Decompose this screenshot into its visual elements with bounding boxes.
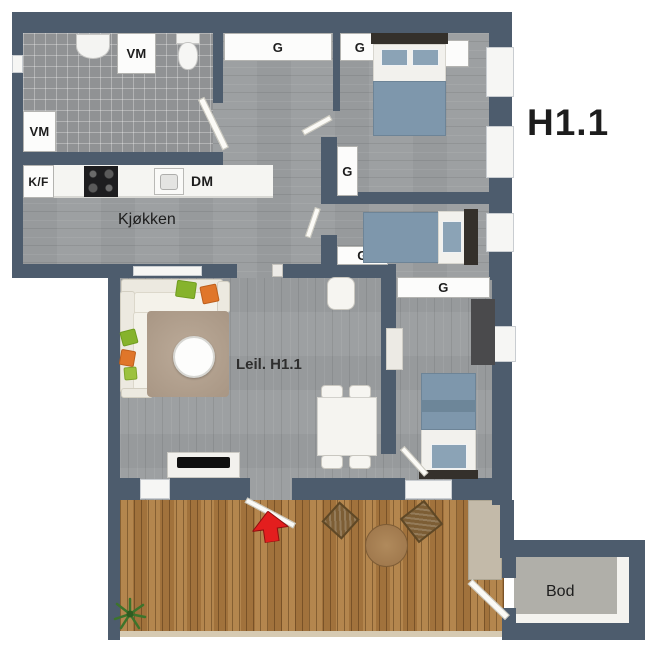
sink-basin bbox=[160, 174, 178, 190]
wall-right-lower bbox=[492, 280, 512, 505]
fridge-freezer: K/F bbox=[23, 165, 54, 198]
wall-top bbox=[12, 12, 511, 33]
door-bed3-south bbox=[405, 480, 452, 499]
wall-bed1-left bbox=[333, 33, 340, 111]
floor-plan: VM VM K/F DM Kjøkken G G G G G bbox=[0, 0, 650, 653]
washing-machine-2-label: VM bbox=[29, 124, 49, 139]
wall-south-2 bbox=[170, 478, 250, 500]
wall-mid-horizontal-east bbox=[283, 264, 387, 278]
wardrobe-bed3: G bbox=[397, 277, 490, 298]
bed3-duvet-fold bbox=[421, 400, 476, 412]
window-bed1-b bbox=[486, 126, 514, 178]
sink bbox=[76, 34, 110, 59]
sofa-pillow-orange bbox=[199, 283, 219, 304]
wall-left-upper bbox=[12, 12, 23, 278]
wardrobe-hall: G bbox=[224, 33, 332, 61]
bed3-pillow bbox=[431, 444, 467, 469]
bod-wall-left-upper bbox=[502, 540, 516, 578]
door-jamb-stub bbox=[272, 264, 283, 277]
entrance-arrow-icon bbox=[250, 509, 290, 545]
bathroom-vent bbox=[12, 55, 23, 73]
wardrobe-bed1-top-label: G bbox=[355, 40, 365, 55]
exterior-wall-tan bbox=[468, 500, 502, 580]
bed1-headboard bbox=[371, 33, 448, 44]
stove bbox=[84, 166, 118, 197]
wall-bath-right bbox=[213, 33, 223, 103]
unit-label: Leil. H1.1 bbox=[236, 356, 302, 373]
wall-mid-horizontal-west bbox=[12, 264, 237, 278]
bed2-duvet bbox=[363, 212, 439, 263]
washing-machine-1: VM bbox=[117, 33, 156, 74]
bod-wall-top bbox=[502, 540, 645, 557]
bed3-wardrobe-dark bbox=[471, 299, 495, 365]
wall-south-3 bbox=[292, 478, 405, 500]
wardrobe-bed1-side-label: G bbox=[342, 164, 352, 179]
kitchen-counter bbox=[23, 165, 273, 198]
fridge-freezer-label: K/F bbox=[28, 175, 48, 189]
wall-bath-bottom bbox=[12, 152, 223, 165]
washing-machine-1-label: VM bbox=[126, 46, 146, 61]
bed2-headboard bbox=[464, 209, 478, 265]
dining-table bbox=[317, 397, 377, 456]
kitchen-label: Kjøkken bbox=[118, 211, 176, 229]
plant bbox=[112, 596, 148, 632]
wardrobe-bed3-label: G bbox=[438, 280, 448, 295]
wall-bed2-left bbox=[321, 235, 337, 266]
dishwasher-label: DM bbox=[191, 173, 213, 189]
terrace-table bbox=[365, 524, 408, 567]
sofa-pillow-lime bbox=[123, 366, 137, 380]
bod-wall-bottom bbox=[502, 623, 645, 640]
window-living-south bbox=[140, 479, 170, 499]
wardrobe-hall-label: G bbox=[273, 40, 283, 55]
tv bbox=[177, 457, 230, 468]
wall-south-4 bbox=[452, 478, 505, 500]
dishwasher-sink bbox=[154, 168, 184, 195]
wardrobe-bed1-side: G bbox=[337, 146, 358, 196]
wall-bed1-sw bbox=[321, 137, 337, 197]
window-bed1-a bbox=[486, 47, 514, 97]
washing-machine-2: VM bbox=[23, 111, 56, 152]
bed3-desk bbox=[386, 328, 403, 370]
nightstand-bed1 bbox=[444, 40, 469, 67]
bed1-duvet bbox=[373, 81, 446, 136]
wall-south-1 bbox=[120, 478, 140, 500]
window-bed2 bbox=[486, 213, 514, 252]
sofa-pillow-green bbox=[175, 280, 197, 300]
deck-edge bbox=[120, 631, 504, 637]
dining-chair-4 bbox=[349, 455, 371, 469]
plan-title: H1.1 bbox=[527, 102, 609, 144]
bed2-pillow bbox=[442, 221, 462, 253]
dining-chair-3 bbox=[321, 455, 343, 469]
armchair bbox=[327, 277, 355, 310]
bed1-pillow-right bbox=[412, 49, 439, 66]
toilet-bowl bbox=[178, 42, 198, 70]
coffee-table bbox=[173, 336, 215, 378]
bed1-pillow-left bbox=[381, 49, 408, 66]
kitchen-pass-opening bbox=[133, 266, 202, 276]
wall-left-lower bbox=[108, 278, 120, 640]
sofa-pillow-orange-2 bbox=[119, 349, 137, 367]
bod-label: Bod bbox=[546, 583, 574, 601]
